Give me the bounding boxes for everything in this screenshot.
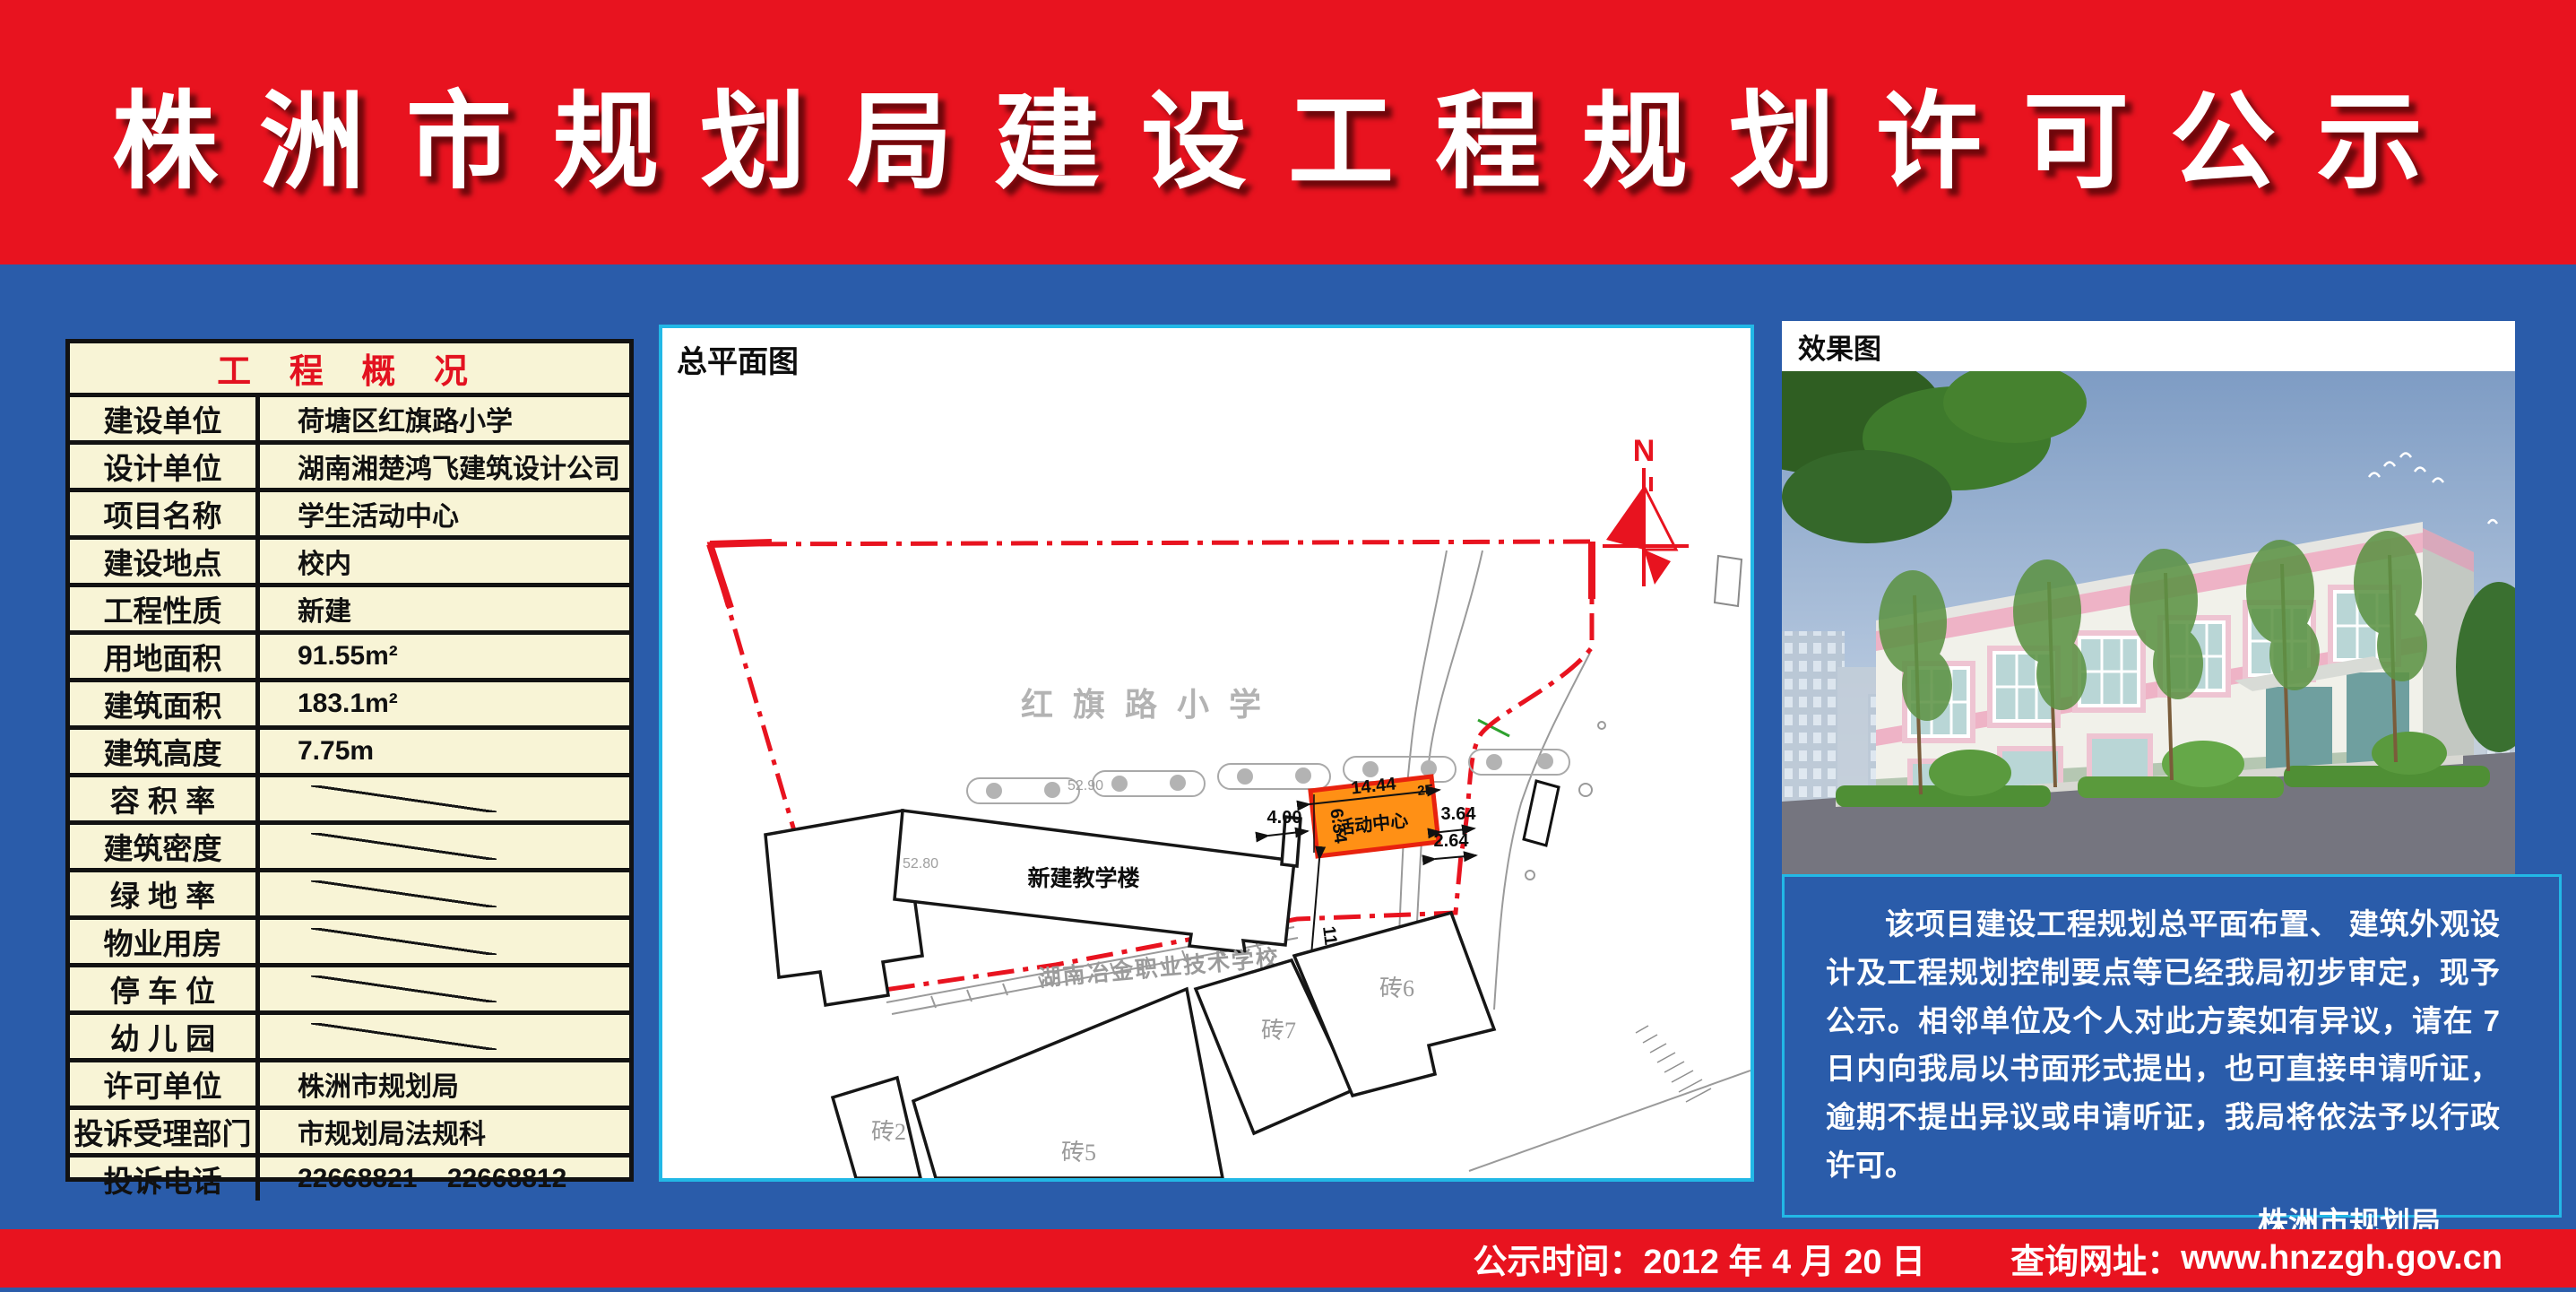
site-plan-panel: 总平面图 红旗路小学 [659, 325, 1754, 1182]
row-label: 工程性质 [70, 587, 260, 630]
row-label: 投诉电话 [70, 1158, 260, 1201]
row-label: 物业用房 [70, 920, 260, 963]
footer-bar: 公示时间： 2012 年 4 月 20 日 查询网址： www.hnzzgh.g… [0, 1229, 2576, 1288]
table-row: 物业用房 [70, 920, 629, 967]
empty-slash [311, 928, 497, 955]
table-row: 幼 儿 园 [70, 1015, 629, 1062]
footer-time-value: 2012 年 4 月 20 日 [1643, 1234, 1925, 1283]
empty-slash [311, 880, 497, 907]
school-name-watermark: 红旗路小学 [1021, 686, 1281, 723]
row-value: 株洲市规划局 [260, 1062, 629, 1106]
site-plan-title: 总平面图 [677, 337, 799, 381]
svg-text:砖7: 砖7 [1261, 1018, 1296, 1044]
table-row: 设计单位湖南湘楚鸿飞建筑设计公司 [70, 445, 629, 492]
steps-hatch [1636, 1026, 1711, 1102]
row-label: 停 车 位 [70, 967, 260, 1010]
row-label: 投诉受理部门 [70, 1110, 260, 1153]
project-overview-table: 工 程 概 况 建设单位荷塘区红旗路小学设计单位湖南湘楚鸿飞建筑设计公司项目名称… [65, 339, 634, 1182]
row-value [260, 777, 629, 820]
empty-slash [311, 976, 497, 1002]
footer-time-label: 公示时间： [1473, 1234, 1643, 1283]
empty-slash [311, 833, 497, 860]
dim-right: 3.64 [1441, 804, 1477, 824]
row-value: 7.75m [260, 730, 629, 773]
row-value [260, 825, 629, 868]
svg-text:砖6: 砖6 [1379, 976, 1414, 1002]
brick-buildings: 砖2 砖5 砖7 砖6 [833, 913, 1494, 1178]
row-value [260, 1015, 629, 1058]
row-value: 91.55m² [260, 635, 629, 678]
svg-text:N: N [1633, 434, 1655, 468]
row-value: 校内 [260, 540, 629, 583]
footer-url-value: www.hnzzgh.gov.cn [2181, 1239, 2503, 1278]
dim-left: 4.00 [1267, 808, 1302, 828]
table-row: 绿 地 率 [70, 872, 629, 920]
elevation-1: 52.90 [1068, 778, 1103, 793]
table-row: 建筑高度7.75m [70, 730, 629, 777]
row-value: 荷塘区红旗路小学 [260, 397, 629, 440]
row-value: 学生活动中心 [260, 492, 629, 535]
small-structure [1524, 781, 1559, 845]
table-row: 用地面积91.55m² [70, 635, 629, 682]
row-value [260, 872, 629, 915]
notice-panel: 该项目建设工程规划总平面布置、 建筑外观设计及工程规划控制要点等已经我局初步审定… [1782, 874, 2562, 1218]
row-label: 建筑密度 [70, 825, 260, 868]
row-label: 建设地点 [70, 540, 260, 583]
table-row: 建设单位荷塘区红旗路小学 [70, 397, 629, 445]
row-label: 幼 儿 园 [70, 1015, 260, 1058]
svg-text:砖2: 砖2 [871, 1119, 906, 1145]
table-row: 建筑密度 [70, 825, 629, 872]
row-label: 建设单位 [70, 397, 260, 440]
empty-slash [311, 785, 497, 812]
row-label: 设计单位 [70, 445, 260, 488]
small-structure-2 [1715, 556, 1742, 606]
row-label: 绿 地 率 [70, 872, 260, 915]
row-label: 容 积 率 [70, 777, 260, 820]
building-rendering [1782, 371, 2515, 874]
banner-header: 株洲市规划局建设工程规划许可公示 [0, 0, 2576, 264]
table-row: 建筑面积183.1m² [70, 682, 629, 730]
elevation-2: 52.80 [903, 856, 938, 871]
row-label: 项目名称 [70, 492, 260, 535]
row-label: 用地面积 [70, 635, 260, 678]
table-row: 许可单位株洲市规划局 [70, 1062, 629, 1110]
empty-slash [311, 1023, 497, 1050]
row-label: 建筑面积 [70, 682, 260, 725]
table-row: 投诉电话22668821 22668812 [70, 1158, 629, 1201]
svg-text:砖5: 砖5 [1061, 1140, 1096, 1166]
page-title: 株洲市规划局建设工程规划许可公示 [112, 56, 2464, 209]
row-value: 新建 [260, 587, 629, 630]
notice-body: 该项目建设工程规划总平面布置、 建筑外观设计及工程规划控制要点等已经我局初步审定… [1785, 877, 2559, 1190]
site-plan-drawing: 红旗路小学 [662, 328, 1750, 1178]
table-row: 停 车 位 [70, 967, 629, 1015]
row-value: 183.1m² [260, 682, 629, 725]
table-row: 项目名称学生活动中心 [70, 492, 629, 540]
table-row: 投诉受理部门市规划局法规科 [70, 1110, 629, 1158]
rendering-panel: 效果图 [1782, 321, 2515, 874]
dim-offset: 2.64 [1434, 831, 1470, 851]
row-value: 22668821 22668812 [260, 1158, 629, 1201]
teaching-building-label: 新建教学楼 [1027, 865, 1139, 891]
row-value: 湖南湘楚鸿飞建筑设计公司 [260, 445, 629, 488]
table-body: 建设单位荷塘区红旗路小学设计单位湖南湘楚鸿飞建筑设计公司项目名称学生活动中心建设… [70, 397, 629, 1201]
row-value [260, 967, 629, 1010]
table-row: 建设地点校内 [70, 540, 629, 587]
rendering-title: 效果图 [1782, 321, 2515, 371]
row-value [260, 920, 629, 963]
row-value: 市规划局法规科 [260, 1110, 629, 1153]
table-row: 工程性质新建 [70, 587, 629, 635]
table-title: 工 程 概 况 [70, 343, 629, 397]
tree-planters [967, 750, 1569, 803]
row-label: 建筑高度 [70, 730, 260, 773]
table-row: 容 积 率 [70, 777, 629, 825]
row-label: 许可单位 [70, 1062, 260, 1106]
footer-url-label: 查询网址： [2010, 1234, 2181, 1283]
north-arrow-icon: N [1603, 434, 1689, 586]
